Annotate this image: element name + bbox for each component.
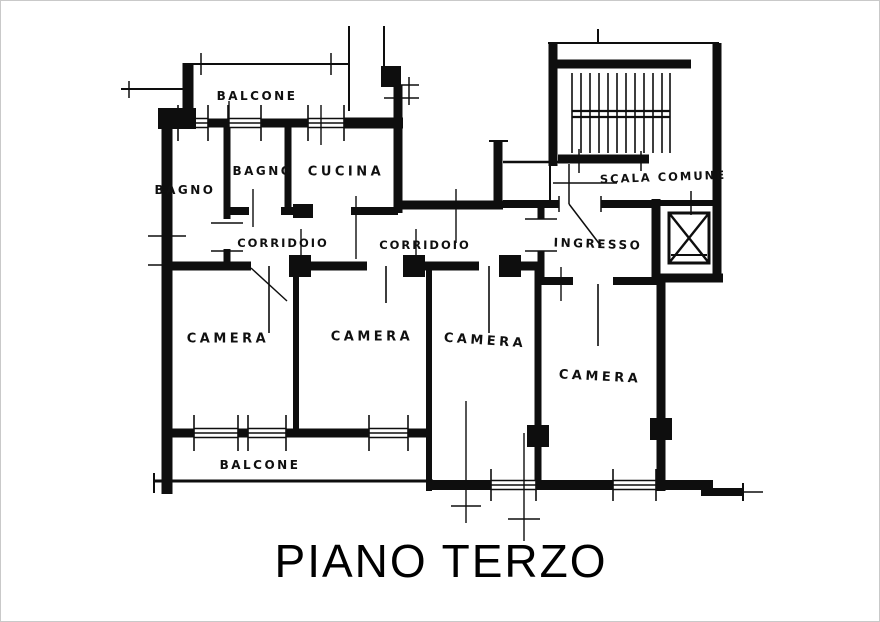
room-label-bagno-north: BAGNO	[232, 164, 293, 178]
room-label-balcone-bottom: BALCONE	[220, 458, 301, 472]
floor-plan-image: BALCONE BAGNO BAGNO CUCINA CORRIDOIO COR…	[0, 0, 880, 622]
room-label-corridoio-west: CORRIDOIO	[237, 236, 329, 250]
room-label-cucina: CUCINA	[308, 165, 384, 180]
room-label-camera-2: CAMERA	[331, 330, 414, 345]
room-label-balcone-top: BALCONE	[217, 89, 298, 103]
plan-title: PIANO TERZO	[275, 534, 608, 588]
room-label-camera-1: CAMERA	[187, 332, 270, 347]
room-label-corridoio-east: CORRIDOIO	[379, 238, 471, 252]
floor-plan-drawing	[1, 1, 880, 622]
room-label-bagno-west: BAGNO	[154, 183, 215, 197]
